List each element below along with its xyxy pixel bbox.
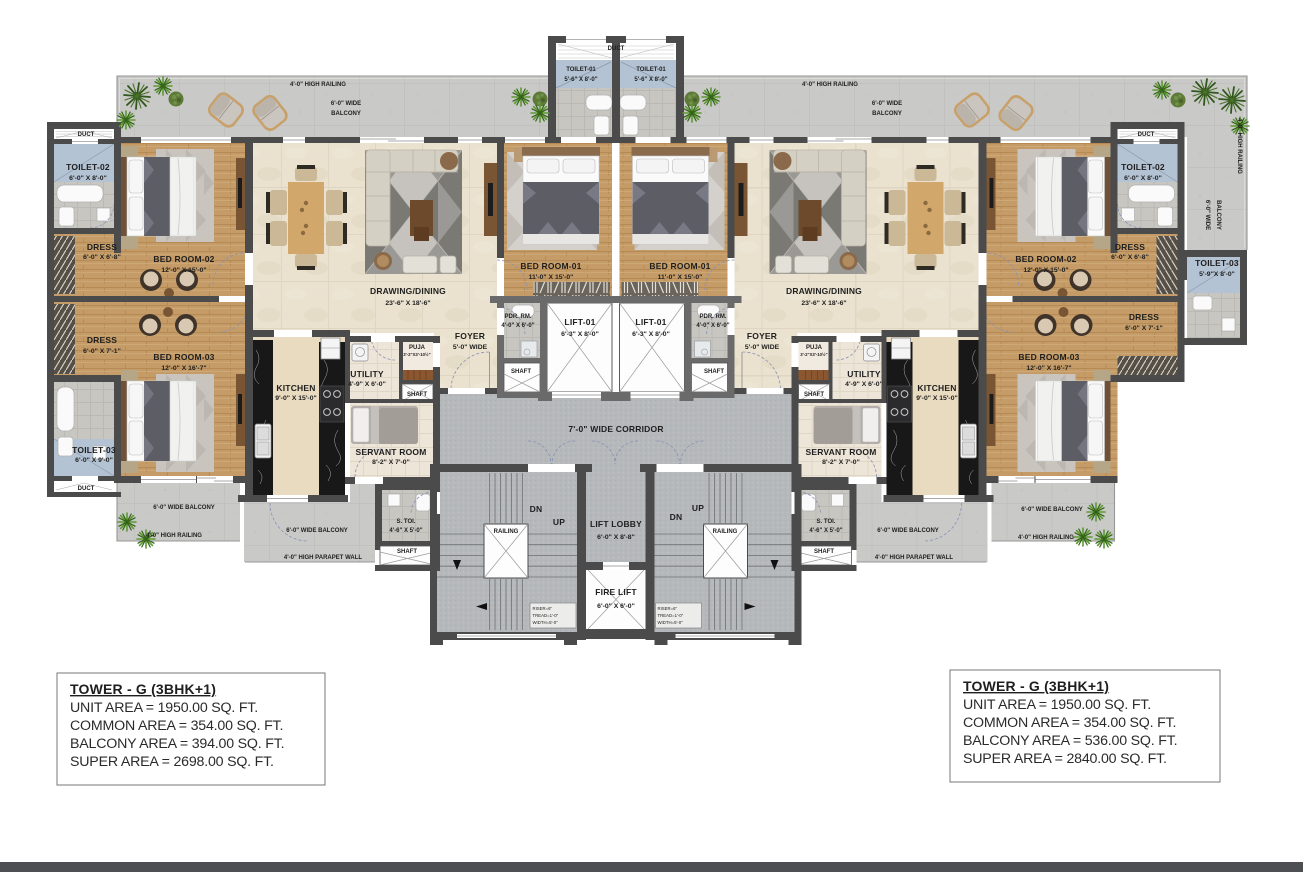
svg-text:FOYER: FOYER xyxy=(747,331,777,341)
svg-text:SHAFT: SHAFT xyxy=(804,392,824,398)
svg-text:BED ROOM-01: BED ROOM-01 xyxy=(649,261,710,271)
svg-text:WIDTH=5'-0": WIDTH=5'-0" xyxy=(533,620,559,625)
svg-text:DUCT: DUCT xyxy=(608,46,625,52)
svg-text:6'-0" X 9'-0": 6'-0" X 9'-0" xyxy=(75,457,113,464)
svg-text:12'-0" X 15'-0": 12'-0" X 15'-0" xyxy=(1023,267,1068,274)
svg-text:11'-0" X 15'-0": 11'-0" X 15'-0" xyxy=(529,274,574,281)
svg-text:KITCHEN: KITCHEN xyxy=(276,383,315,393)
svg-text:4'-0" HIGH RAILING: 4'-0" HIGH RAILING xyxy=(1236,118,1242,174)
svg-text:TOILET-03: TOILET-03 xyxy=(72,445,116,455)
svg-text:SHAFT: SHAFT xyxy=(704,369,724,375)
svg-text:DN: DN xyxy=(670,512,683,522)
svg-text:6'-0" X 8'-0": 6'-0" X 8'-0" xyxy=(1124,175,1162,182)
svg-text:8'-2" X 7'-0": 8'-2" X 7'-0" xyxy=(822,459,860,466)
svg-text:S. TOI.: S. TOI. xyxy=(817,519,836,525)
svg-text:TOILET-02: TOILET-02 xyxy=(1121,162,1165,172)
svg-text:TOILET-01: TOILET-01 xyxy=(636,67,666,73)
svg-text:DRESS: DRESS xyxy=(87,335,117,345)
svg-text:6'-0" WIDE: 6'-0" WIDE xyxy=(331,101,361,107)
svg-text:BALCONY AREA = 394.00 SQ. FT.: BALCONY AREA = 394.00 SQ. FT. xyxy=(70,736,284,752)
svg-text:12'-0" X 16'-7": 12'-0" X 16'-7" xyxy=(1026,365,1071,372)
svg-text:4'-0" HIGH RAILING: 4'-0" HIGH RAILING xyxy=(146,533,202,539)
svg-text:BALCONY: BALCONY xyxy=(872,111,902,117)
svg-text:LIFT LOBBY: LIFT LOBBY xyxy=(590,519,642,529)
svg-text:PDR. RM.: PDR. RM. xyxy=(505,314,532,320)
svg-text:4'-0" HIGH PARAPET WALL: 4'-0" HIGH PARAPET WALL xyxy=(284,555,362,561)
svg-text:DRAWING/DINING: DRAWING/DINING xyxy=(370,286,446,296)
svg-text:BALCONY: BALCONY xyxy=(331,111,361,117)
svg-text:6'-0" X 7'-1": 6'-0" X 7'-1" xyxy=(83,348,121,355)
svg-text:LIFT-01: LIFT-01 xyxy=(564,317,595,327)
svg-text:6'-0" WIDE: 6'-0" WIDE xyxy=(1204,200,1210,230)
svg-text:TREAD=1'-0": TREAD=1'-0" xyxy=(658,613,684,618)
svg-text:BED ROOM-02: BED ROOM-02 xyxy=(1015,254,1076,264)
svg-text:COMMON AREA = 354.00 SQ. FT.: COMMON AREA = 354.00 SQ. FT. xyxy=(70,718,283,734)
svg-text:4'-9" X 6'-0": 4'-9" X 6'-0" xyxy=(348,381,386,388)
svg-text:6'-0" X 6'-8": 6'-0" X 6'-8" xyxy=(1111,254,1149,261)
svg-text:TOILET-02: TOILET-02 xyxy=(66,162,110,172)
svg-text:SERVANT ROOM: SERVANT ROOM xyxy=(355,447,426,457)
svg-text:BED ROOM-03: BED ROOM-03 xyxy=(1018,352,1079,362)
svg-text:SHAFT: SHAFT xyxy=(397,549,417,555)
svg-text:DUCT: DUCT xyxy=(1138,132,1155,138)
svg-text:RISER=6": RISER=6" xyxy=(658,606,678,611)
svg-text:S. TOI.: S. TOI. xyxy=(397,519,416,525)
svg-text:BALCONY: BALCONY xyxy=(1215,200,1221,230)
svg-text:6'-0" X 6'-0": 6'-0" X 6'-0" xyxy=(597,603,635,610)
svg-text:5'-6" X 8'-0": 5'-6" X 8'-0" xyxy=(564,77,597,83)
svg-text:DRESS: DRESS xyxy=(1129,312,1159,322)
svg-text:BED ROOM-03: BED ROOM-03 xyxy=(153,352,214,362)
svg-text:4'-6" X 5'-0": 4'-6" X 5'-0" xyxy=(389,528,422,534)
svg-text:23'-6" X 18'-6": 23'-6" X 18'-6" xyxy=(801,300,846,307)
svg-text:DRESS: DRESS xyxy=(87,242,117,252)
svg-text:6'-0" WIDE: 6'-0" WIDE xyxy=(872,101,902,107)
svg-text:RAILING: RAILING xyxy=(494,529,519,535)
svg-text:WIDTH=5'-0": WIDTH=5'-0" xyxy=(658,620,684,625)
svg-text:4'-0" X 6'-0": 4'-0" X 6'-0" xyxy=(696,323,729,329)
svg-text:6'-0" X 7'-1": 6'-0" X 7'-1" xyxy=(1125,325,1163,332)
svg-text:DRAWING/DINING: DRAWING/DINING xyxy=(786,286,862,296)
svg-text:SHAFT: SHAFT xyxy=(814,549,834,555)
svg-text:DN: DN xyxy=(530,504,543,514)
svg-text:4'-6" X 5'-0": 4'-6" X 5'-0" xyxy=(809,528,842,534)
svg-text:8'-2" X 7'-0": 8'-2" X 7'-0" xyxy=(372,459,410,466)
svg-text:6'-0" WIDE BALCONY: 6'-0" WIDE BALCONY xyxy=(1021,507,1083,513)
svg-text:5'-6" X 8'-0": 5'-6" X 8'-0" xyxy=(634,77,667,83)
svg-text:PUJA: PUJA xyxy=(409,345,426,351)
svg-text:5'-0" WIDE: 5'-0" WIDE xyxy=(745,344,780,351)
svg-text:4'-0" HIGH RAILING: 4'-0" HIGH RAILING xyxy=(290,82,346,88)
svg-text:6'-3" X 8'-0": 6'-3" X 8'-0" xyxy=(632,331,670,338)
svg-text:BALCONY AREA = 536.00 SQ. FT.: BALCONY AREA = 536.00 SQ. FT. xyxy=(963,733,1177,749)
svg-text:FIRE LIFT: FIRE LIFT xyxy=(595,587,637,597)
svg-text:11'-0" X 15'-0": 11'-0" X 15'-0" xyxy=(658,274,703,281)
svg-text:UTILITY: UTILITY xyxy=(847,369,881,379)
svg-text:6'-0" X 6'-8": 6'-0" X 6'-8" xyxy=(83,254,121,261)
svg-text:5'-9"X 8'-0": 5'-9"X 8'-0" xyxy=(1199,271,1235,278)
svg-text:TOWER - G (3BHK+1): TOWER - G (3BHK+1) xyxy=(70,681,216,697)
svg-text:SERVANT ROOM: SERVANT ROOM xyxy=(805,447,876,457)
svg-text:COMMON AREA = 354.00 SQ. FT.: COMMON AREA = 354.00 SQ. FT. xyxy=(963,715,1176,731)
svg-text:12'-0" X 16'-7": 12'-0" X 16'-7" xyxy=(161,365,206,372)
svg-text:TOILET-03: TOILET-03 xyxy=(1195,258,1239,268)
svg-text:SHAFT: SHAFT xyxy=(407,392,427,398)
svg-text:UP: UP xyxy=(692,503,704,513)
svg-text:FOYER: FOYER xyxy=(455,331,485,341)
svg-text:TOWER - G (3BHK+1): TOWER - G (3BHK+1) xyxy=(963,678,1109,694)
svg-text:3'-2"X3'-10½": 3'-2"X3'-10½" xyxy=(403,352,430,357)
svg-text:6'-0" WIDE BALCONY: 6'-0" WIDE BALCONY xyxy=(153,505,215,511)
svg-text:UNIT AREA = 1950.00 SQ. FT.: UNIT AREA = 1950.00 SQ. FT. xyxy=(963,697,1151,713)
svg-text:TREAD=1'-0": TREAD=1'-0" xyxy=(533,613,559,618)
svg-text:6'-3" X 8'-0": 6'-3" X 8'-0" xyxy=(561,331,599,338)
svg-text:12'-0" X 15'-0": 12'-0" X 15'-0" xyxy=(161,267,206,274)
svg-text:SHAFT: SHAFT xyxy=(511,369,531,375)
svg-text:3'-2"X3'-10½": 3'-2"X3'-10½" xyxy=(800,352,827,357)
svg-text:PDR. RM.: PDR. RM. xyxy=(700,314,727,320)
svg-text:7'-0" WIDE CORRIDOR: 7'-0" WIDE CORRIDOR xyxy=(568,424,663,434)
svg-text:6'-0" WIDE BALCONY: 6'-0" WIDE BALCONY xyxy=(286,528,348,534)
svg-text:LIFT-01: LIFT-01 xyxy=(635,317,666,327)
svg-text:RAILING: RAILING xyxy=(713,529,738,535)
svg-text:6'-0" WIDE BALCONY: 6'-0" WIDE BALCONY xyxy=(877,528,939,534)
svg-text:DRESS: DRESS xyxy=(1115,242,1145,252)
svg-text:RISER=6": RISER=6" xyxy=(533,606,553,611)
svg-text:4'-0" X 6'-0": 4'-0" X 6'-0" xyxy=(501,323,534,329)
svg-text:4'-9" X 6'-0": 4'-9" X 6'-0" xyxy=(845,381,883,388)
svg-text:6'-0" X 8'-8": 6'-0" X 8'-8" xyxy=(597,534,635,541)
svg-text:BED ROOM-02: BED ROOM-02 xyxy=(153,254,214,264)
svg-text:BED ROOM-01: BED ROOM-01 xyxy=(520,261,581,271)
svg-text:UP: UP xyxy=(553,517,565,527)
svg-text:DUCT: DUCT xyxy=(78,486,95,492)
svg-text:6'-0" X 8'-0": 6'-0" X 8'-0" xyxy=(69,175,107,182)
svg-text:9'-0" X 15'-0": 9'-0" X 15'-0" xyxy=(275,395,316,402)
svg-text:4'-0" HIGH RAILING: 4'-0" HIGH RAILING xyxy=(1018,535,1074,541)
svg-text:23'-6" X 18'-6": 23'-6" X 18'-6" xyxy=(385,300,430,307)
svg-text:SUPER AREA = 2840.00 SQ. FT.: SUPER AREA = 2840.00 SQ. FT. xyxy=(963,751,1167,767)
svg-text:TOILET-01: TOILET-01 xyxy=(566,67,596,73)
svg-text:4'-0" HIGH RAILING: 4'-0" HIGH RAILING xyxy=(802,82,858,88)
svg-text:SUPER AREA = 2698.00 SQ. FT.: SUPER AREA = 2698.00 SQ. FT. xyxy=(70,754,274,770)
svg-text:UTILITY: UTILITY xyxy=(350,369,384,379)
svg-text:9'-0" X 15'-0": 9'-0" X 15'-0" xyxy=(916,395,957,402)
svg-text:UNIT AREA = 1950.00 SQ. FT.: UNIT AREA = 1950.00 SQ. FT. xyxy=(70,700,258,716)
svg-text:DUCT: DUCT xyxy=(78,132,95,138)
svg-text:4'-0" HIGH PARAPET WALL: 4'-0" HIGH PARAPET WALL xyxy=(875,555,953,561)
svg-text:PUJA: PUJA xyxy=(806,345,823,351)
svg-text:KITCHEN: KITCHEN xyxy=(917,383,956,393)
svg-text:5'-0" WIDE: 5'-0" WIDE xyxy=(453,344,488,351)
